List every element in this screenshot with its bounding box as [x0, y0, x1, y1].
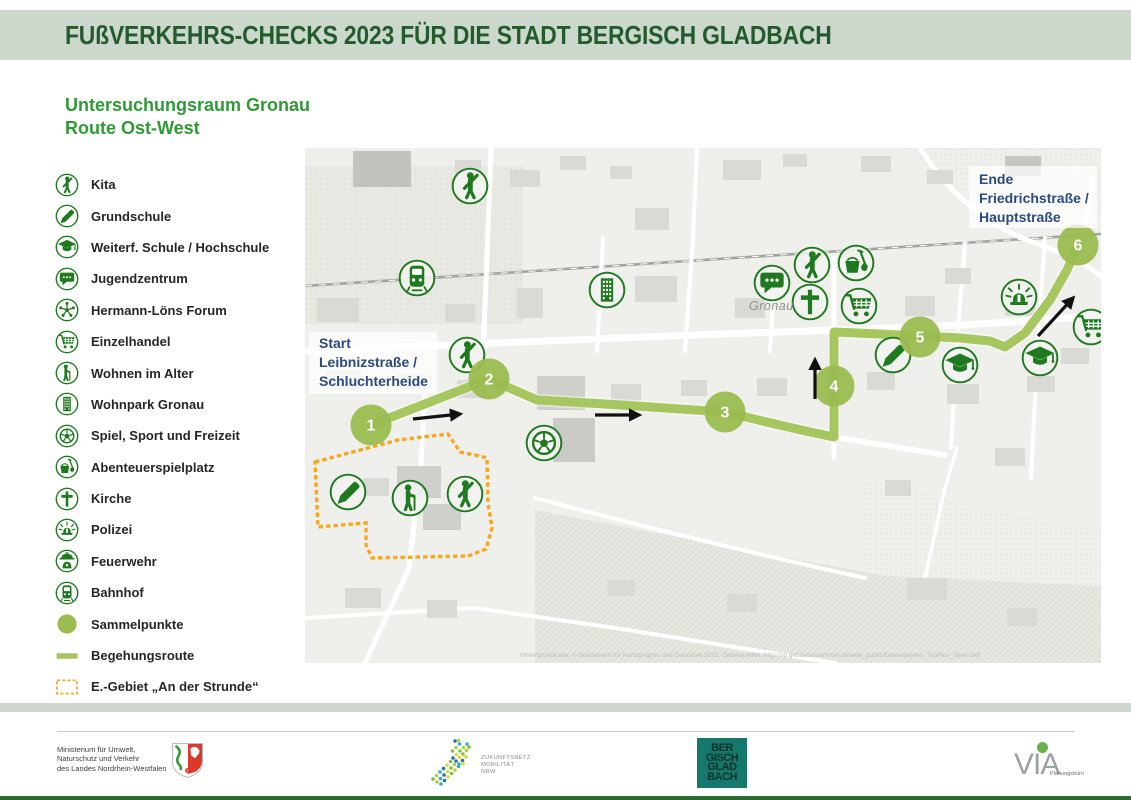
route-map: 123456StartLeibnizstraße /Schluchterheid…: [305, 148, 1101, 663]
ministry-logo-text: Ministerium für Umwelt, Naturschutz und …: [57, 745, 167, 773]
end-label-line: Hauptstraße: [979, 209, 1061, 225]
legend-icon-wrap: [55, 644, 79, 668]
legend-label: Einzelhandel: [91, 334, 170, 349]
end-label: EndeFriedrichstraße /Hauptstraße: [969, 166, 1097, 228]
via-sub-label: Planungsbüro: [1050, 771, 1084, 777]
title-banner: FUßVERKEHRS-CHECKS 2023 FÜR DIE STADT BE…: [0, 10, 1131, 60]
legend-label: Wohnen im Alter: [91, 366, 194, 381]
ministry-line: Ministerium für Umwelt,: [57, 745, 167, 754]
via-dot-icon: [1037, 742, 1048, 753]
legend-label: Grundschule: [91, 209, 171, 224]
kita-icon: [448, 477, 483, 512]
zukunftsnetz-arrow-icon: [427, 738, 473, 786]
legend-icon-wrap: [55, 267, 79, 291]
legend-label: Wohnpark Gronau: [91, 397, 204, 412]
legend-icon-wrap: [55, 392, 79, 416]
legend-label: Sammelpunkte: [91, 617, 183, 632]
waypoint-number: 6: [1074, 238, 1083, 255]
legend-label: Begehungsroute: [91, 648, 194, 663]
legend-icon-wrap: [55, 330, 79, 354]
feuerwehr-icon: [55, 549, 79, 573]
wohnen-im-alter-icon: [393, 481, 428, 516]
legend-item-weiterf-schule: Weiterf. Schule / Hochschule: [55, 232, 269, 263]
legend-label: Feuerwehr: [91, 554, 157, 569]
bahnhof-icon: [55, 581, 79, 605]
legend-label: Polizei: [91, 522, 132, 537]
kirche-icon: [55, 487, 79, 511]
via-logo: VIA Planungsbüro: [1014, 742, 1124, 787]
waypoint-number: 5: [916, 330, 925, 347]
einzelhandel-icon: [55, 330, 79, 354]
nrw-coat-of-arms-icon: [171, 742, 204, 779]
zukunftsnetz-logo: ZUKUNFTSNETZ MOBILITÄT NRW: [427, 738, 531, 786]
waypoint-number: 2: [485, 372, 494, 389]
zn-line: ZUKUNFTSNETZ: [481, 755, 531, 762]
route-map-canvas: 123456StartLeibnizstraße /Schluchterheid…: [305, 148, 1101, 663]
legend-icon-wrap: [55, 612, 79, 636]
start-label: StartLeibnizstraße /Schluchterheide: [309, 332, 437, 394]
legend-icon-wrap: [55, 518, 79, 542]
legend-item-einzelhandel: Einzelhandel: [55, 326, 269, 357]
wohnen-im-alter-icon: [55, 361, 79, 385]
legend-icon-wrap: [55, 173, 79, 197]
subtitle-line2: Route Ost-West: [65, 117, 310, 140]
legend-icon-wrap: [55, 361, 79, 385]
spiel-sport-freizeit-icon: [55, 424, 79, 448]
waypoint-5: 5: [900, 317, 941, 358]
legend-icon-wrap: [55, 204, 79, 228]
waypoint-number: 3: [721, 405, 730, 422]
legend-item-begehungsroute: Begehungsroute: [55, 640, 269, 671]
legend-label: E.-Gebiet „An der Strunde“: [91, 679, 259, 694]
legend-item-wohnpark-gronau: Wohnpark Gronau: [55, 389, 269, 420]
waypoint-number: 1: [367, 418, 376, 435]
footer-band: [0, 703, 1131, 712]
polizei-icon: [55, 518, 79, 542]
grundschule-icon: [55, 204, 79, 228]
bgl-line: BACH: [707, 773, 737, 783]
kita-icon: [55, 173, 79, 197]
legend-item-abenteuerspielplatz: Abenteuerspielplatz: [55, 452, 269, 483]
bergisch-gladbach-logo: BER GISCH GLAD BACH: [697, 738, 747, 788]
map-attribution: Hintergrundkarte: © Bundesamt für Kartog…: [520, 651, 980, 659]
legend-item-sammelpunkte: Sammelpunkte: [55, 608, 269, 639]
einzelhandel-icon: [1074, 310, 1101, 345]
jugendzentrum-icon: [55, 267, 79, 291]
abenteuerspielplatz-icon: [839, 246, 874, 281]
legend-item-feuerwehr: Feuerwehr: [55, 546, 269, 577]
ministry-line: des Landes Nordrhein-Westfalen: [57, 764, 167, 773]
map-subtitle: Untersuchungsraum Gronau Route Ost-West: [65, 94, 310, 140]
start-label-line: Schluchterheide: [319, 373, 428, 389]
grundschule-icon: [331, 475, 366, 510]
abenteuerspielplatz-icon: [55, 455, 79, 479]
start-label-line: Leibnizstraße /: [319, 354, 417, 370]
legend-item-hermann-loens-forum: Hermann-Löns Forum: [55, 295, 269, 326]
zn-line: MOBILITÄT: [481, 762, 531, 769]
legend-item-kirche: Kirche: [55, 483, 269, 514]
legend-item-polizei: Polizei: [55, 514, 269, 545]
waypoint-2: 2: [469, 359, 510, 400]
legend-item-bahnhof: Bahnhof: [55, 577, 269, 608]
einzelhandel-icon: [842, 289, 877, 324]
polizei-icon: [1002, 280, 1037, 315]
legend-label: Abenteuerspielplatz: [91, 460, 215, 475]
legend-label: Jugendzentrum: [91, 271, 188, 286]
subtitle-line1: Untersuchungsraum Gronau: [65, 94, 310, 117]
legend-icon-wrap: [55, 549, 79, 573]
legend-icon-wrap: [55, 487, 79, 511]
bahnhof-icon: [400, 261, 435, 296]
kirche-icon: [793, 285, 828, 320]
sammelpunkte-icon: [55, 612, 79, 636]
legend-label: Kirche: [91, 491, 131, 506]
footer-separator: [57, 731, 1074, 732]
legend-label: Kita: [91, 177, 116, 192]
legend-icon-wrap: [55, 424, 79, 448]
legend-icon-wrap: [55, 235, 79, 259]
waypoint-4: 4: [814, 366, 855, 407]
e-gebiet-icon: [55, 675, 79, 699]
legend-label: Weiterf. Schule / Hochschule: [91, 240, 269, 255]
weiterf-schule-icon: [1023, 341, 1058, 376]
zukunftsnetz-text: ZUKUNFTSNETZ MOBILITÄT NRW: [481, 755, 531, 786]
waypoint-number: 4: [830, 379, 839, 396]
bottom-border: [0, 796, 1131, 800]
waypoint-6: 6: [1058, 225, 1099, 266]
wohnpark-gronau-icon: [590, 273, 625, 308]
end-label-line: Friedrichstraße /: [979, 190, 1089, 206]
legend-item-jugendzentrum: Jugendzentrum: [55, 263, 269, 294]
legend-item-grundschule: Grundschule: [55, 200, 269, 231]
kita-icon: [453, 169, 488, 204]
begehungsroute-icon: [55, 644, 79, 668]
ministry-line: Naturschutz und Verkehr: [57, 754, 167, 763]
kita-icon: [795, 248, 830, 283]
legend-item-spiel-sport-freizeit: Spiel, Sport und Freizeit: [55, 420, 269, 451]
district-label: Gronau: [749, 299, 794, 313]
map-legend: KitaGrundschuleWeiterf. Schule / Hochsch…: [55, 169, 269, 703]
legend-icon-wrap: [55, 581, 79, 605]
weiterf-schule-icon: [55, 235, 79, 259]
jugendzentrum-icon: [755, 266, 790, 301]
waypoint-1: 1: [351, 405, 392, 446]
legend-label: Spiel, Sport und Freizeit: [91, 428, 240, 443]
zn-line: NRW: [481, 769, 531, 776]
hermann-loens-forum-icon: [55, 298, 79, 322]
end-label-line: Ende: [979, 171, 1013, 187]
legend-icon-wrap: [55, 455, 79, 479]
page-title: FUßVERKEHRS-CHECKS 2023 FÜR DIE STADT BE…: [65, 20, 832, 51]
weiterf-schule-icon: [943, 348, 978, 383]
legend-icon-wrap: [55, 675, 79, 699]
legend-item-e-gebiet: E.-Gebiet „An der Strunde“: [55, 671, 269, 702]
waypoint-3: 3: [705, 392, 746, 433]
legend-label: Bahnhof: [91, 585, 144, 600]
legend-item-wohnen-im-alter: Wohnen im Alter: [55, 357, 269, 388]
legend-label: Hermann-Löns Forum: [91, 303, 227, 318]
legend-icon-wrap: [55, 298, 79, 322]
start-label-line: Start: [319, 335, 351, 351]
spiel-sport-freizeit-icon: [527, 426, 562, 461]
legend-item-kita: Kita: [55, 169, 269, 200]
wohnpark-gronau-icon: [55, 392, 79, 416]
